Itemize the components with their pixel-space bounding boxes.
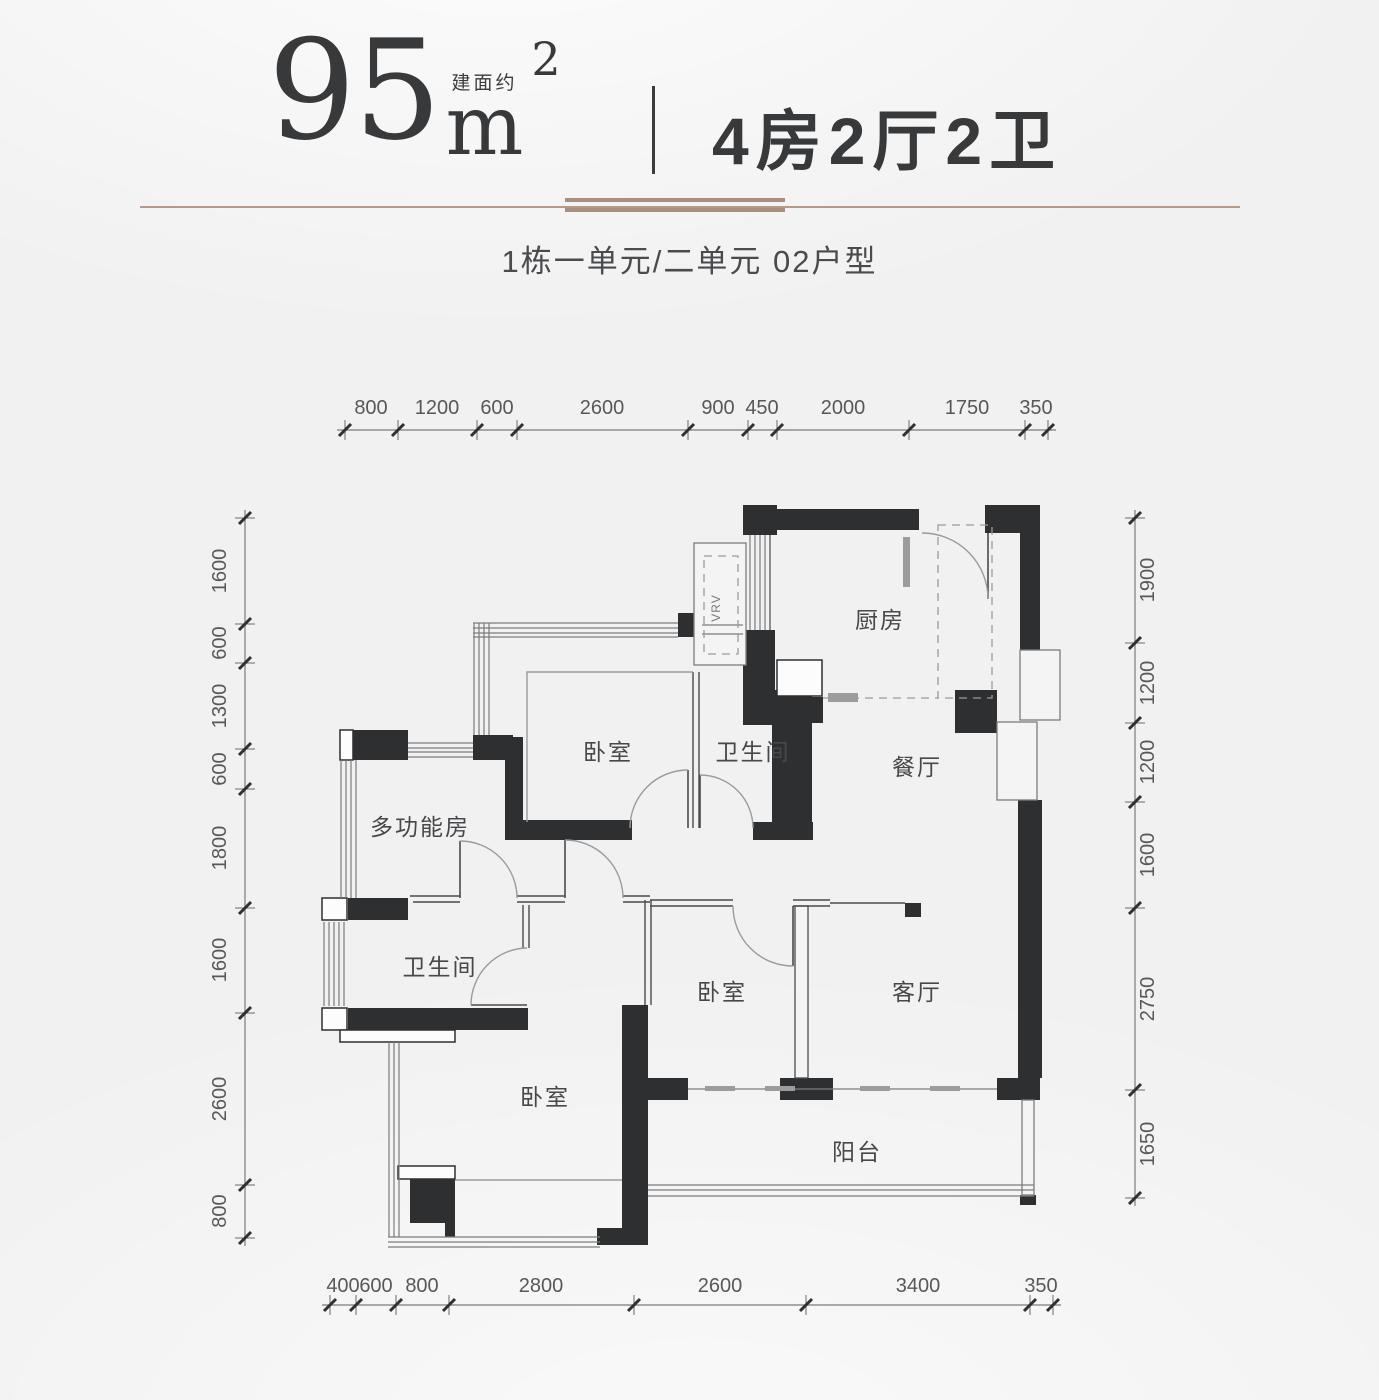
dimension-label: 2750: [1137, 977, 1159, 1022]
room-label-bedroom-bottom: 卧室: [520, 1084, 570, 1110]
room-label-bedroom-center: 卧室: [697, 979, 747, 1005]
dimension-label: 1900: [1137, 558, 1159, 603]
dimension-chain-right: 1900 1200 1200 1600 2750 1650: [1125, 510, 1159, 1206]
dimension-label: 3400: [896, 1275, 941, 1297]
dimension-label: 800: [354, 397, 387, 419]
dimension-label: 400: [326, 1275, 359, 1297]
room-label-dining: 餐厅: [892, 754, 942, 780]
room-label-bathroom-upper: 卫生间: [716, 739, 791, 765]
dimension-label: 1800: [209, 826, 231, 871]
dimension-label: 2800: [519, 1275, 564, 1297]
dimension-label: 350: [1019, 397, 1052, 419]
dimension-label: 1200: [1137, 740, 1159, 785]
vrv-equipment-label: VRV: [709, 594, 723, 621]
room-label-multifunction: 多功能房: [370, 814, 470, 840]
dimension-label: 600: [480, 397, 513, 419]
dimension-chain-top: 800 1200 600 2600 900 450 2000 1750 350: [337, 397, 1056, 440]
floorplan-drawing: 800 1200 600 2600 900 450 2000 1750 350 …: [0, 0, 1379, 1400]
dimension-label: 1750: [945, 397, 990, 419]
dimension-label: 2600: [580, 397, 625, 419]
room-label-bedroom-upper: 卧室: [583, 739, 633, 765]
dimension-label: 600: [209, 752, 231, 785]
dimension-label: 800: [209, 1194, 231, 1227]
dimension-label: 1200: [1137, 661, 1159, 706]
dimension-label: 1300: [209, 684, 231, 729]
windows: [324, 535, 1034, 1247]
dimension-label: 900: [701, 397, 734, 419]
dimension-label: 1600: [209, 938, 231, 983]
dimension-label: 2600: [209, 1077, 231, 1122]
dimension-label: 1600: [209, 549, 231, 594]
dimension-label: 1600: [1137, 833, 1159, 878]
dimension-label: 600: [209, 626, 231, 659]
dimension-chain-bottom: 400 600 800 2800 2600 3400 350: [322, 1275, 1061, 1315]
room-label-balcony: 阳台: [832, 1139, 882, 1165]
room-label-living: 客厅: [892, 979, 942, 1005]
room-label-bathroom-lower: 卫生间: [403, 954, 478, 980]
dimension-label: 350: [1024, 1275, 1057, 1297]
dimension-label: 600: [359, 1275, 392, 1297]
floorplan-page: 95 建面约 m 2 4房2厅2卫 1栋一单元/二单元 02户型: [0, 0, 1379, 1400]
dimension-label: 2000: [821, 397, 866, 419]
dimension-label: 1200: [415, 397, 460, 419]
room-label-kitchen: 厨房: [855, 607, 905, 633]
dimension-label: 1650: [1137, 1122, 1159, 1167]
dimension-label: 800: [405, 1275, 438, 1297]
dimension-label: 450: [745, 397, 778, 419]
dimension-label: 2600: [698, 1275, 743, 1297]
dimension-chain-left: 1600 600 1300 600 1800 1600 2600 800: [209, 510, 255, 1246]
